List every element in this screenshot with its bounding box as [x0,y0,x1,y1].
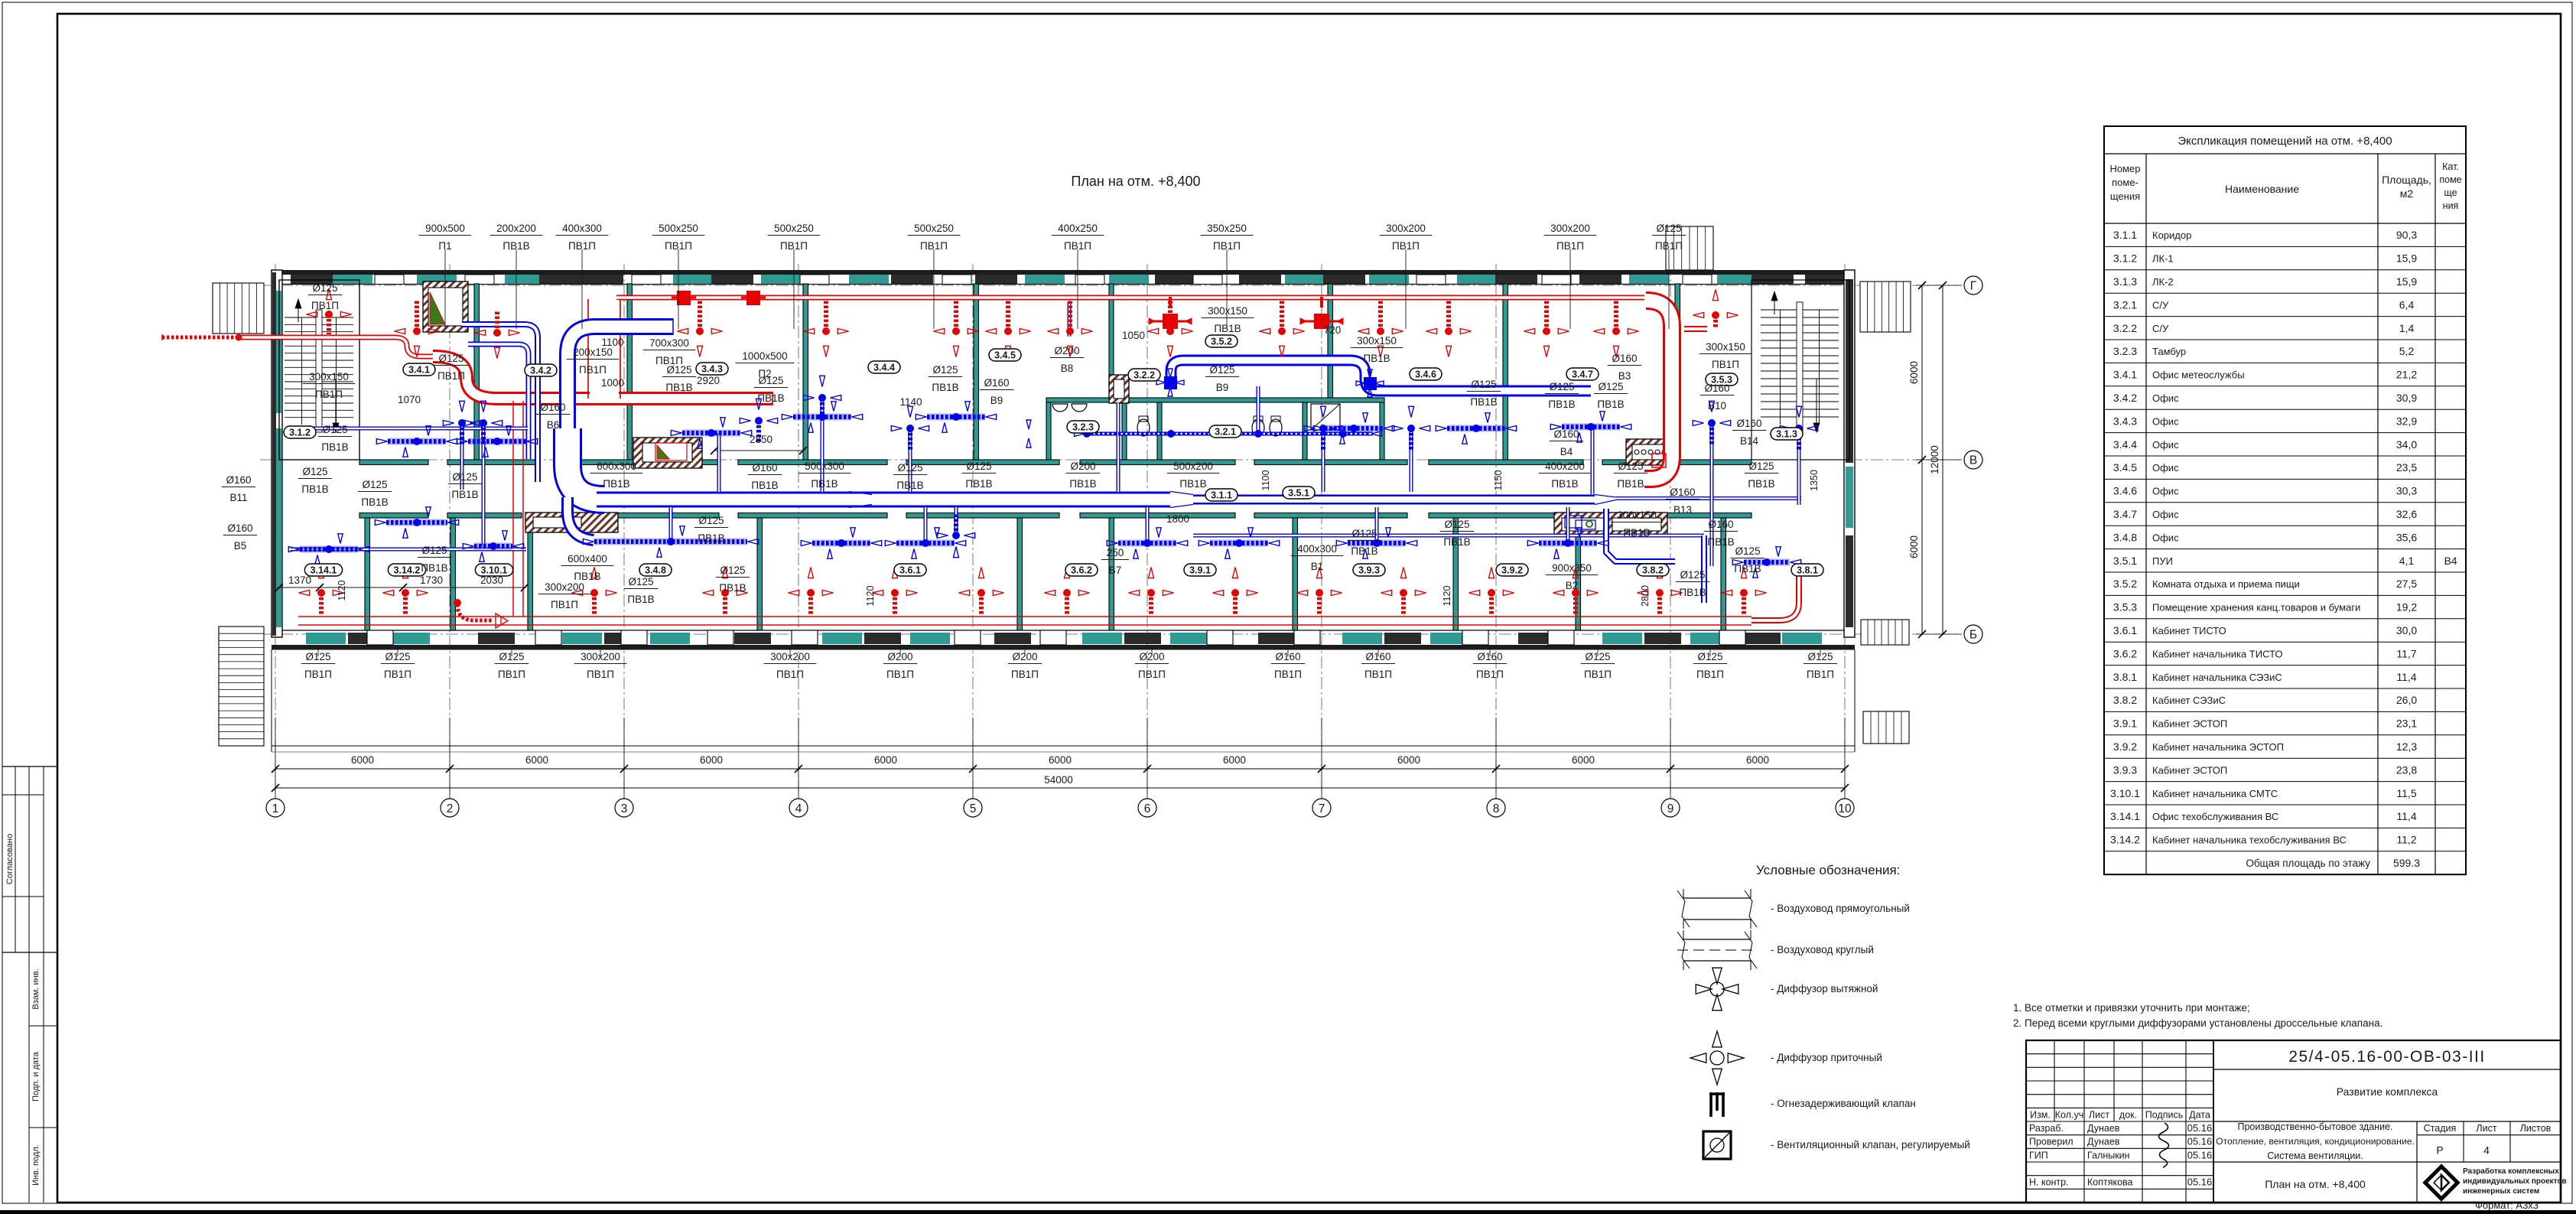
svg-text:Ø125: Ø125 [302,466,327,477]
svg-text:ПВ1В: ПВ1В [361,496,388,508]
svg-text:Экспликация помещений на отм.: Экспликация помещений на отм. +8,400 [2178,135,2392,148]
svg-text:Офис: Офис [2152,486,2179,497]
svg-text:Подп. и дата: Подп. и дата [31,1051,41,1102]
svg-text:ПВ1П: ПВ1П [315,389,343,400]
svg-text:ПВ1П: ПВ1П [311,300,339,311]
svg-text:3.4.1: 3.4.1 [408,365,430,376]
svg-text:ПВ1В: ПВ1В [1551,478,1578,490]
svg-text:Тамбур: Тамбур [2152,346,2186,357]
svg-text:3.4.3: 3.4.3 [2113,415,2137,427]
svg-text:11,2: 11,2 [2396,834,2416,846]
svg-text:3.4.6: 3.4.6 [1415,369,1436,380]
svg-text:900x500: 900x500 [425,223,465,234]
svg-text:В2: В2 [1566,580,1579,591]
svg-text:Офис техобслуживания ВС: Офис техобслуживания ВС [2152,811,2278,822]
svg-text:3.5.2: 3.5.2 [2113,578,2137,590]
svg-text:Подпись: Подпись [2145,1109,2183,1120]
svg-text:Производственно-бытовое здание: Производственно-бытовое здание. [2238,1121,2393,1132]
svg-text:В10: В10 [1708,400,1726,412]
svg-text:ПВ1В: ПВ1В [751,480,778,491]
svg-text:Ø160: Ø160 [1612,353,1637,364]
svg-text:3.6.1: 3.6.1 [899,565,921,576]
svg-text:2. Перед всеми круглыми ди: 2. Перед всеми круглыми диффузорами уста… [2013,1017,2382,1029]
svg-text:3.5.2: 3.5.2 [1211,337,1232,347]
svg-text:3.8.1: 3.8.1 [1797,565,1818,576]
svg-text:300x200: 300x200 [1550,223,1590,234]
svg-text:ПВ1П: ПВ1П [587,669,614,680]
svg-text:Ø125: Ø125 [1656,223,1681,234]
svg-text:350x250: 350x250 [1207,223,1247,234]
svg-text:В8: В8 [1061,363,1074,374]
svg-text:200x200: 200x200 [496,223,536,234]
svg-text:3.6.2: 3.6.2 [2113,647,2137,659]
svg-text:Офис: Офис [2152,462,2179,474]
svg-text:ПВ1В: ПВ1В [574,571,600,582]
svg-text:ГИП: ГИП [2029,1150,2048,1160]
svg-text:3.14.1: 3.14.1 [311,565,337,576]
svg-text:План на отм. +8,400: План на отм. +8,400 [1071,174,1200,189]
svg-text:500x250: 500x250 [914,223,954,234]
svg-text:3.8.1: 3.8.1 [2113,671,2137,683]
svg-text:3.1.1: 3.1.1 [1211,490,1232,501]
svg-text:План на отм. +8,400: План на отм. +8,400 [2265,1178,2366,1190]
svg-text:300x200: 300x200 [545,581,584,593]
svg-text:3.4.2: 3.4.2 [530,366,551,376]
svg-text:Помещение хранения канц.товаро: Помещение хранения канц.товаров и бумаги [2152,602,2360,614]
svg-text:ПВ1В: ПВ1В [1179,478,1206,490]
svg-text:Ø160: Ø160 [540,402,565,413]
svg-text:1070: 1070 [398,394,421,405]
svg-text:6000: 6000 [1908,361,1920,384]
svg-text:3.1.3: 3.1.3 [1776,429,1797,440]
svg-text:300x150: 300x150 [1357,335,1397,347]
svg-text:2850: 2850 [750,434,772,445]
svg-text:ПВ1П: ПВ1П [437,370,465,382]
svg-text:ПВ1В: ПВ1В [321,441,348,453]
svg-text:Ø125: Ø125 [1680,569,1705,581]
svg-text:900x350: 900x350 [1552,562,1592,574]
svg-text:ПВ1П: ПВ1П [498,669,525,680]
svg-text:Ø125: Ø125 [720,565,745,576]
svg-text:30,0: 30,0 [2396,624,2417,636]
svg-text:ПВ1П: ПВ1П [304,669,332,680]
svg-text:Офис: Офис [2152,439,2179,451]
svg-text:Разработка комплексных: Разработка комплексных [2463,1167,2559,1176]
svg-text:м2: м2 [2400,187,2414,200]
svg-text:В14: В14 [1740,435,1759,447]
svg-text:Листов: Листов [2520,1123,2552,1134]
svg-text:1120: 1120 [337,581,347,601]
svg-text:Ø125: Ø125 [1598,381,1623,392]
svg-text:ПВ1П: ПВ1П [1712,359,1739,370]
svg-text:Ø125: Ø125 [1735,545,1760,557]
svg-text:1: 1 [272,802,279,815]
svg-text:док.: док. [2119,1109,2137,1120]
svg-text:Инв. подл.: Инв. подл. [31,1144,41,1186]
svg-text:2: 2 [447,802,454,815]
svg-text:1150: 1150 [1493,470,1504,491]
svg-text:3.5.3: 3.5.3 [2113,601,2137,614]
svg-text:3.4.5: 3.4.5 [994,350,1016,361]
svg-text:ПВ1П: ПВ1П [1807,669,1834,680]
svg-text:Ø125: Ø125 [452,471,477,483]
svg-text:1000x500: 1000x500 [742,350,787,362]
svg-text:4,1: 4,1 [2399,555,2415,567]
svg-text:Офис: Офис [2152,532,2179,543]
svg-text:Ø125: Ø125 [932,364,958,376]
svg-text:1370: 1370 [288,574,311,586]
svg-text:ПВ1В: ПВ1В [1548,399,1575,410]
svg-text:3.10.1: 3.10.1 [2110,787,2140,799]
svg-text:индивидуальных проектов: индивидуальных проектов [2463,1177,2567,1186]
svg-text:Развитие комплекса: Развитие комплекса [2337,1085,2438,1098]
svg-text:90,3: 90,3 [2396,229,2417,241]
svg-text:6,4: 6,4 [2399,298,2415,311]
svg-text:15,9: 15,9 [2396,252,2417,265]
svg-text:ПВ1П: ПВ1П [1274,669,1302,680]
svg-text:1120: 1120 [1442,586,1452,607]
svg-text:Площадь,: Площадь, [2382,174,2431,186]
svg-text:05.16: 05.16 [2187,1177,2213,1188]
svg-text:Офис: Офис [2152,509,2179,520]
svg-text:3.14.1: 3.14.1 [2110,810,2140,822]
svg-text:Согласовано: Согласовано [5,834,15,884]
svg-text:ПВ1П: ПВ1П [1011,669,1039,680]
svg-text:11,5: 11,5 [2396,787,2416,799]
svg-text:Комната отдыха и приема пищи: Комната отдыха и приема пищи [2152,578,2300,590]
svg-text:ПВ1В: ПВ1В [1748,478,1774,490]
svg-text:300x150: 300x150 [1617,509,1657,521]
svg-text:1730: 1730 [420,574,443,586]
svg-text:ПВ1В: ПВ1В [1214,323,1241,334]
svg-text:Б: Б [1969,629,1977,642]
svg-text:32,9: 32,9 [2396,415,2417,427]
svg-text:Наименование: Наименование [2225,183,2299,195]
svg-text:3.1.1: 3.1.1 [2113,229,2137,241]
svg-text:34,0: 34,0 [2396,438,2417,451]
svg-text:Кабинет начальника ЭСТОП: Кабинет начальника ЭСТОП [2152,741,2284,753]
svg-text:ПВ1В: ПВ1В [811,478,838,490]
svg-text:Номер: Номер [2109,163,2140,174]
svg-text:Ø125: Ø125 [1444,519,1469,530]
svg-text:500x300: 500x300 [805,461,844,472]
svg-text:3.5.1: 3.5.1 [1288,488,1309,499]
svg-text:6000: 6000 [1908,535,1920,558]
svg-text:Ø200: Ø200 [1070,461,1095,472]
svg-text:6000: 6000 [874,754,897,766]
svg-text:В13: В13 [1673,504,1692,516]
svg-text:Кат.: Кат. [2442,161,2459,172]
svg-text:Ø125: Ø125 [438,353,463,364]
svg-text:23,1: 23,1 [2396,718,2417,730]
svg-text:3.1.2: 3.1.2 [2113,252,2137,265]
svg-text:ПВ1П: ПВ1П [384,669,411,680]
svg-text:ПВ1В: ПВ1В [965,478,992,490]
svg-text:700x300: 700x300 [649,337,689,349]
svg-text:4: 4 [2483,1144,2490,1157]
svg-text:ПВ1П: ПВ1П [1364,669,1392,680]
svg-text:Кабинет ЭСТОП: Кабинет ЭСТОП [2152,764,2227,776]
svg-text:400x300: 400x300 [562,223,602,234]
svg-text:3.1.3: 3.1.3 [2113,275,2137,288]
svg-text:Ø125: Ø125 [1351,528,1377,539]
svg-text:Ø160: Ø160 [1708,519,1733,530]
svg-text:300x200: 300x200 [1386,223,1426,234]
svg-text:3.6.2: 3.6.2 [1071,565,1092,576]
svg-text:3.14.2: 3.14.2 [394,565,421,576]
svg-text:11,4: 11,4 [2396,810,2416,822]
svg-text:3.9.2: 3.9.2 [1501,565,1523,576]
svg-text:500x250: 500x250 [659,223,698,234]
svg-text:ПВ1В: ПВ1В [1617,478,1644,490]
svg-text:3.4.8: 3.4.8 [2113,531,2137,543]
svg-text:Ø125: Ø125 [666,364,691,376]
svg-text:ПВ1П: ПВ1П [1476,669,1504,680]
svg-text:ПВ1П: ПВ1П [1584,669,1612,680]
svg-text:600x400: 600x400 [568,553,607,565]
svg-text:300x150: 300x150 [309,371,349,382]
svg-text:1140: 1140 [899,396,922,408]
svg-text:поме-: поме- [2112,177,2139,188]
svg-text:32,6: 32,6 [2396,508,2417,520]
svg-text:3.9.2: 3.9.2 [2113,740,2137,753]
svg-text:В1: В1 [1311,561,1324,572]
svg-text:Формат: А3х3: Формат: А3х3 [2475,1199,2539,1211]
svg-text:- Воздуховод круглый: - Воздуховод круглый [1771,944,1874,955]
svg-text:- Диффузор вытяжной: - Диффузор вытяжной [1771,983,1878,994]
svg-text:Ø125: Ø125 [1748,461,1774,472]
svg-text:В11: В11 [229,492,247,503]
svg-text:26,0: 26,0 [2396,694,2417,706]
svg-text:Кабинет начальника СМТС: Кабинет начальника СМТС [2152,788,2278,799]
svg-text:Кабинет СЭЗиС: Кабинет СЭЗиС [2152,695,2226,706]
svg-text:поме: поме [2439,174,2461,185]
svg-text:6000: 6000 [1397,754,1420,766]
svg-text:54000: 54000 [1044,774,1073,786]
svg-text:1100: 1100 [1260,470,1271,491]
svg-text:3.2.1: 3.2.1 [1215,427,1236,438]
svg-text:Ø125: Ø125 [322,424,347,435]
svg-text:ПВ1П: ПВ1П [551,599,578,610]
svg-text:С/У: С/У [2152,323,2169,334]
svg-text:Ø125: Ø125 [698,515,724,526]
svg-text:Ø125: Ø125 [966,461,991,472]
svg-text:23,8: 23,8 [2396,763,2417,776]
svg-text:В9: В9 [1216,382,1229,393]
svg-text:500x250: 500x250 [774,223,814,234]
svg-text:ПВ1В: ПВ1В [719,582,746,594]
svg-text:5: 5 [970,802,977,815]
svg-text:В6: В6 [547,419,560,431]
svg-text:Дата: Дата [2189,1109,2210,1120]
svg-text:Кол.уч: Кол.уч [2055,1109,2084,1120]
svg-text:3: 3 [621,802,628,815]
svg-text:720: 720 [1324,324,1342,336]
svg-text:Кабинет начальника СЭЗиС: Кабинет начальника СЭЗиС [2152,672,2282,683]
svg-text:ПВ1В: ПВ1В [603,478,629,490]
svg-text:3.4.4: 3.4.4 [2113,438,2137,451]
svg-text:3.1.2: 3.1.2 [289,428,311,438]
svg-text:Ø160: Ø160 [984,377,1009,389]
svg-text:6000: 6000 [1746,754,1769,766]
svg-text:Ø125: Ø125 [897,462,922,474]
svg-text:1120: 1120 [865,586,876,607]
svg-text:ПВ1В: ПВ1В [698,532,724,544]
svg-text:Система вентиляции.: Система вентиляции. [2267,1151,2363,1161]
svg-text:Кабинет ТИСТО: Кабинет ТИСТО [2152,625,2226,636]
svg-text:В7: В7 [1109,565,1122,576]
svg-text:ПВ1В: ПВ1В [1623,527,1650,539]
svg-text:В4: В4 [2444,555,2457,567]
svg-text:Ø160: Ø160 [227,522,252,534]
svg-text:- Воздуховод прямоугольный: - Воздуховод прямоугольный [1771,903,1910,914]
svg-text:400x250: 400x250 [1058,223,1098,234]
svg-text:Ø125: Ø125 [312,282,337,294]
svg-text:1100: 1100 [601,337,623,348]
svg-text:3.14.2: 3.14.2 [2110,834,2140,846]
svg-text:Г: Г [1970,280,1977,293]
svg-text:В5: В5 [234,540,247,552]
svg-text:Дунаев: Дунаев [2087,1137,2120,1147]
svg-text:3.2.1: 3.2.1 [2113,298,2137,311]
svg-text:3.9.3: 3.9.3 [1358,565,1380,576]
svg-text:Офис метеослужбы: Офис метеослужбы [2152,369,2245,381]
svg-text:В: В [1969,454,1977,467]
svg-text:6000: 6000 [351,754,374,766]
svg-text:Ø125: Ø125 [758,375,783,386]
svg-text:Кабинет ЭСТОП: Кабинет ЭСТОП [2152,718,2227,730]
svg-text:Лист: Лист [2476,1123,2496,1134]
svg-text:- Диффузор приточный: - Диффузор приточный [1771,1052,1882,1063]
svg-text:Ø125: Ø125 [421,545,447,556]
svg-text:В4: В4 [1560,446,1573,457]
svg-text:Ø160: Ø160 [226,474,251,486]
svg-text:200x150: 200x150 [573,347,613,358]
svg-text:300x150: 300x150 [1208,305,1247,317]
svg-text:ПВ1В: ПВ1В [1734,563,1761,574]
svg-text:400x200: 400x200 [1545,461,1585,472]
svg-text:Ø125: Ø125 [362,479,387,490]
svg-text:Условные обозначения:: Условные обозначения: [1756,863,1900,877]
svg-text:ПВ1В: ПВ1В [1351,545,1377,557]
svg-text:1,4: 1,4 [2399,322,2415,334]
svg-text:27,5: 27,5 [2396,578,2417,590]
svg-text:3.4.1: 3.4.1 [2113,369,2137,381]
svg-text:ПВ1В: ПВ1В [1443,536,1470,548]
svg-text:7: 7 [1319,802,1325,815]
svg-text:250: 250 [1107,547,1124,558]
svg-text:ПВ1В: ПВ1В [421,562,447,574]
svg-text:ния: ния [2443,200,2459,211]
svg-text:ПВ1В: ПВ1В [757,392,784,404]
svg-text:Галныкин: Галныкин [2087,1150,2130,1160]
svg-text:3.4.5: 3.4.5 [2113,461,2137,474]
svg-text:Н. контр.: Н. контр. [2029,1177,2069,1188]
svg-text:Ø160: Ø160 [1553,428,1579,440]
svg-text:ПВ1В: ПВ1В [1707,536,1734,548]
svg-text:Кабинет начальника техобслужив: Кабинет начальника техобслуживания ВС [2152,835,2347,846]
svg-text:35,6: 35,6 [2396,531,2417,543]
svg-text:05.16: 05.16 [2187,1122,2213,1134]
svg-text:3.4.4: 3.4.4 [873,363,895,373]
svg-text:2030: 2030 [480,574,503,586]
svg-text:С/У: С/У [2152,299,2169,311]
svg-text:- Вентиляционный клапан, регул: - Вентиляционный клапан, регулируемый [1771,1139,1970,1151]
svg-text:Дунаев: Дунаев [2087,1123,2120,1134]
svg-text:599.3: 599.3 [2393,857,2420,869]
svg-text:3.4.7: 3.4.7 [2113,508,2137,520]
svg-text:Разраб.: Разраб. [2029,1123,2064,1134]
svg-text:05.16: 05.16 [2187,1149,2213,1160]
svg-text:Р: Р [2436,1144,2443,1157]
svg-text:Ø125: Ø125 [628,576,653,587]
svg-text:3.9.1: 3.9.1 [2113,718,2137,730]
svg-text:Ø160: Ø160 [752,462,777,474]
svg-text:3.4.2: 3.4.2 [2113,392,2137,404]
svg-text:8: 8 [1493,802,1500,815]
svg-text:ПВ1В: ПВ1В [301,483,328,495]
svg-text:6000: 6000 [700,754,723,766]
svg-text:25/4-05.16-00-ОВ-03-III: 25/4-05.16-00-ОВ-03-III [2288,1048,2485,1066]
svg-text:Офис: Офис [2152,392,2179,404]
svg-text:ПВ1В: ПВ1В [1069,478,1096,490]
svg-text:Проверил: Проверил [2029,1137,2073,1147]
svg-text:10: 10 [1838,802,1852,815]
svg-text:3.4.6: 3.4.6 [2113,485,2137,497]
svg-text:3.2.2: 3.2.2 [1134,370,1155,381]
svg-text:600x300: 600x300 [597,461,636,472]
svg-text:12000: 12000 [1929,445,1940,474]
svg-text:Взам. инв.: Взам. инв. [31,968,41,1009]
svg-text:05.16: 05.16 [2187,1136,2213,1147]
svg-text:11,7: 11,7 [2396,647,2416,659]
svg-text:3.8.2: 3.8.2 [1642,565,1664,576]
svg-text:Коридор: Коридор [2152,229,2191,241]
svg-text:Ø125: Ø125 [1618,461,1643,472]
svg-text:11,4: 11,4 [2396,671,2416,683]
svg-text:6000: 6000 [525,754,548,766]
svg-text:Лист: Лист [2089,1109,2109,1120]
svg-text:ПВ1В: ПВ1В [1363,353,1390,364]
svg-text:Кабинет начальника ТИСТО: Кабинет начальника ТИСТО [2152,648,2283,659]
svg-text:3.8.2: 3.8.2 [2113,694,2137,706]
svg-text:- Огнезадерживающий клапан: - Огнезадерживающий клапан [1771,1098,1916,1109]
svg-text:6000: 6000 [1572,754,1595,766]
svg-text:3.4.7: 3.4.7 [1572,369,1593,380]
svg-text:19,2: 19,2 [2396,601,2417,614]
svg-text:15,9: 15,9 [2396,275,2417,288]
svg-text:Ø125: Ø125 [1549,381,1574,392]
svg-text:3.2.3: 3.2.3 [1072,422,1094,433]
svg-text:ПВ1В: ПВ1В [896,480,923,491]
svg-text:400x300: 400x300 [1297,543,1337,555]
svg-text:3.9.3: 3.9.3 [2113,763,2137,776]
svg-text:Стадия: Стадия [2424,1123,2457,1134]
svg-text:21,2: 21,2 [2396,369,2417,381]
svg-text:300x150: 300x150 [1706,341,1745,353]
svg-text:6000: 6000 [1049,754,1072,766]
svg-text:Ø125: Ø125 [1209,364,1234,376]
svg-text:ще: ще [2444,187,2457,198]
svg-text:инженерных систем: инженерных систем [2463,1187,2539,1196]
svg-text:6: 6 [1144,802,1151,815]
svg-text:Общая площадь по этажу: Общая площадь по этажу [2246,858,2370,869]
svg-text:Ø160: Ø160 [1670,487,1695,498]
svg-text:6000: 6000 [1223,754,1246,766]
svg-text:1050: 1050 [1122,330,1145,341]
svg-text:30,9: 30,9 [2396,392,2417,404]
svg-text:3.5.1: 3.5.1 [2113,555,2137,567]
